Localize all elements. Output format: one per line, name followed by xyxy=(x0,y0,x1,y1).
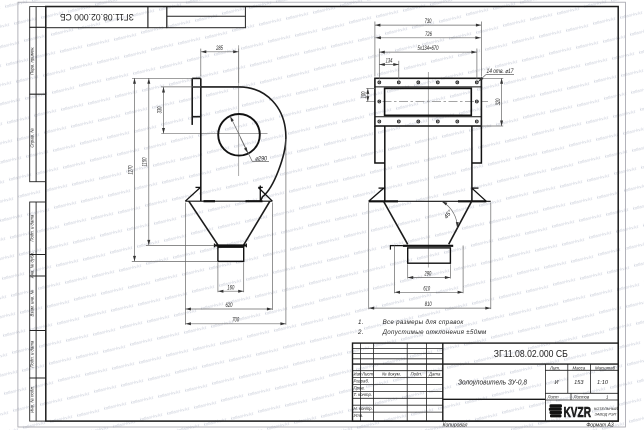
svg-text:ЗАВОД РЭП: ЗАВОД РЭП xyxy=(595,412,617,416)
svg-text:610: 610 xyxy=(423,286,430,292)
svg-text:KVZR: KVZR xyxy=(564,405,592,421)
svg-text:Лист: Лист xyxy=(361,372,373,377)
svg-text:Масштаб: Масштаб xyxy=(595,365,616,370)
svg-text:И: И xyxy=(554,380,558,386)
svg-text:5х134=670: 5х134=670 xyxy=(418,46,439,52)
svg-text:Перв. примен.: Перв. примен. xyxy=(30,46,35,75)
svg-text:153: 153 xyxy=(574,380,584,386)
svg-text:Подп. и дата: Подп. и дата xyxy=(30,214,35,242)
svg-text:726: 726 xyxy=(425,32,432,38)
svg-text:КОТЕЛЬНЫЙ: КОТЕЛЬНЫЙ xyxy=(594,407,618,411)
svg-text:1.: 1. xyxy=(358,319,364,326)
svg-text:Утв.: Утв. xyxy=(354,413,364,418)
svg-text:700: 700 xyxy=(232,318,239,324)
svg-text:Масса: Масса xyxy=(573,365,586,370)
svg-text:134: 134 xyxy=(386,59,393,65)
svg-text:Все размеры для справок: Все размеры для справок xyxy=(383,319,465,326)
svg-text:620: 620 xyxy=(226,303,233,309)
svg-text:Разраб.: Разраб. xyxy=(354,378,370,383)
svg-text:Взам. инв. №: Взам. инв. № xyxy=(30,290,35,317)
svg-text:Т. контр.: Т. контр. xyxy=(354,392,373,397)
svg-text:ЗГ11.08.02.000 СБ: ЗГ11.08.02.000 СБ xyxy=(60,12,134,22)
svg-text:Допустимые отклонения ±50мм: Допустимые отклонения ±50мм xyxy=(382,329,487,336)
svg-text:Инв. № подл.: Инв. № подл. xyxy=(30,386,35,413)
svg-text:Изм: Изм xyxy=(354,372,362,377)
svg-text:285: 285 xyxy=(215,46,223,52)
svg-text:Копировал: Копировал xyxy=(443,423,468,429)
svg-text:1:10: 1:10 xyxy=(597,380,609,386)
svg-text:Лит.: Лит. xyxy=(549,365,560,370)
svg-text:320: 320 xyxy=(496,98,502,105)
svg-text:Подп. и дата: Подп. и дата xyxy=(30,340,35,368)
svg-text:160: 160 xyxy=(227,285,234,291)
svg-text:⌀290: ⌀290 xyxy=(255,156,268,162)
svg-text:290: 290 xyxy=(424,271,432,277)
svg-text:2.: 2. xyxy=(357,329,364,336)
svg-text:Формат А3: Формат А3 xyxy=(586,423,614,429)
svg-text:Пров.: Пров. xyxy=(354,385,365,390)
svg-text:Н. контр.: Н. контр. xyxy=(354,406,373,411)
svg-text:Золоуловитель ЗУ-0,8: Золоуловитель ЗУ-0,8 xyxy=(458,378,527,386)
svg-text:1270: 1270 xyxy=(128,165,134,174)
svg-text:1150: 1150 xyxy=(143,157,149,166)
svg-text:730: 730 xyxy=(425,19,432,25)
svg-text:Инв. № дубл.: Инв. № дубл. xyxy=(30,252,35,278)
svg-text:Листов: Листов xyxy=(573,395,590,400)
svg-text:100: 100 xyxy=(362,91,368,98)
svg-text:330: 330 xyxy=(158,106,164,113)
svg-text:№ докум.: № докум. xyxy=(382,372,401,377)
svg-text:ЗГ11.08.02.000 СБ: ЗГ11.08.02.000 СБ xyxy=(494,349,568,360)
svg-text:810: 810 xyxy=(425,302,432,308)
svg-text:Справ. №: Справ. № xyxy=(30,128,35,148)
svg-text:Подп.: Подп. xyxy=(411,372,422,377)
svg-text:Дата: Дата xyxy=(428,372,441,377)
svg-text:14 отв. ⌀17: 14 отв. ⌀17 xyxy=(487,69,515,75)
svg-text:Лист: Лист xyxy=(547,395,559,400)
